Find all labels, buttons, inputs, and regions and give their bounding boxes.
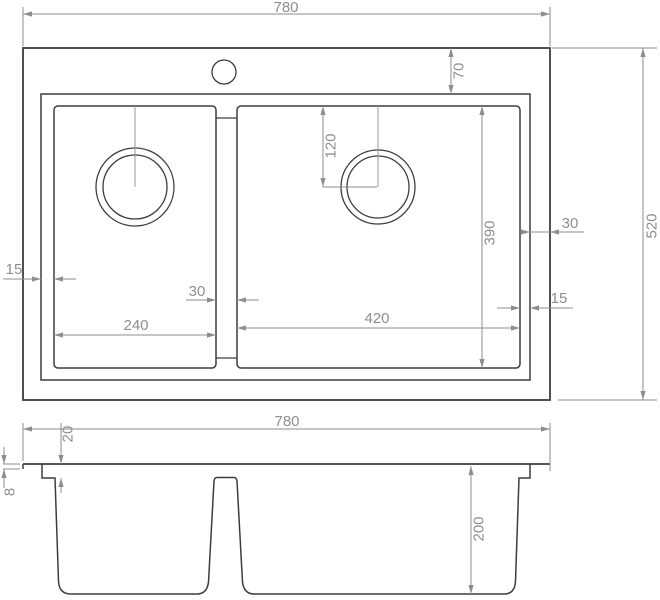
dim-arrow xyxy=(640,391,645,400)
dim-label-overall-width-front: 780 xyxy=(274,413,299,430)
dim-label-divider-width: 30 xyxy=(189,283,206,300)
dimension-rim-offset-top: 70 xyxy=(448,48,467,94)
dim-arrow xyxy=(511,305,520,310)
dim-arrow xyxy=(521,229,530,234)
dim-label-bowl-depth: 200 xyxy=(471,516,488,541)
dim-arrow xyxy=(54,276,63,281)
dim-arrow xyxy=(448,85,453,94)
plan-rim-edge xyxy=(41,94,530,380)
dim-arrow xyxy=(479,106,484,115)
dim-label-bowl-length: 390 xyxy=(482,220,499,245)
dimension-rim-to-bowl-left: 15 xyxy=(3,261,76,282)
dimension-overall-width-front: 780 xyxy=(23,413,550,471)
dim-arrow xyxy=(479,359,484,368)
dim-arrow xyxy=(1,469,6,478)
plan-view xyxy=(23,48,550,400)
dim-arrow xyxy=(237,325,246,330)
dim-arrow xyxy=(54,332,63,337)
dim-arrow xyxy=(468,466,473,475)
dim-arrow xyxy=(511,325,520,330)
dim-arrow xyxy=(58,478,63,487)
dim-label-right-bowl-width: 420 xyxy=(364,310,389,327)
dim-arrow xyxy=(1,455,6,464)
dim-arrow xyxy=(468,585,473,594)
dim-label-rim-to-edge-right: 30 xyxy=(562,215,579,232)
dim-arrow xyxy=(530,305,539,310)
dim-label-drain-offset-from-bowl-top: 120 xyxy=(323,133,340,158)
dim-label-left-bowl-width: 240 xyxy=(123,317,148,334)
dim-arrow xyxy=(32,276,41,281)
dim-label-rim-to-bowl-left: 15 xyxy=(6,261,23,278)
dim-arrow xyxy=(207,332,216,337)
dim-arrow xyxy=(448,48,453,57)
dim-label-overall-depth: 520 xyxy=(644,213,660,238)
dimension-bowl-length: 390 xyxy=(479,106,498,368)
dimension-bowl-to-rim-right: 15 xyxy=(497,290,573,311)
dim-label-rim-height: 20 xyxy=(60,426,77,443)
dimension-drain-offset-from-bowl-top: 120 xyxy=(320,106,377,187)
sink-dimension-drawing: 7807012039052015302404201530780208200 xyxy=(0,0,660,600)
dim-arrow xyxy=(23,426,32,431)
dim-arrow xyxy=(541,11,550,16)
dimension-left-bowl-width: 240 xyxy=(54,317,216,338)
dim-label-bowl-to-rim-right: 15 xyxy=(551,290,568,307)
dim-label-rim-offset-top: 70 xyxy=(451,63,468,80)
faucet-hole xyxy=(212,60,236,84)
dim-label-edge-lip-height: 8 xyxy=(2,488,19,496)
dimension-divider-width: 30 xyxy=(186,283,259,303)
dimension-bowl-depth: 200 xyxy=(468,466,487,594)
dimension-right-bowl-width: 420 xyxy=(237,310,520,331)
dim-arrow xyxy=(320,106,325,115)
dim-arrow xyxy=(550,229,559,234)
plan-outer-edge xyxy=(23,48,550,400)
dimension-overall-width-top: 780 xyxy=(23,0,550,46)
dim-arrow xyxy=(541,426,550,431)
front-bowl-profile xyxy=(42,464,530,594)
dimension-rim-height: 20 xyxy=(58,423,76,493)
dim-arrow xyxy=(237,297,246,302)
dim-arrow xyxy=(23,11,32,16)
dim-arrow xyxy=(58,455,63,464)
drawing-svg: 7807012039052015302404201530780208200 xyxy=(0,0,660,600)
dim-arrow xyxy=(320,178,325,187)
dim-arrow xyxy=(207,297,216,302)
dimension-edge-lip-height: 8 xyxy=(1,447,20,496)
dim-arrow xyxy=(640,48,645,57)
dim-label-overall-width-top: 780 xyxy=(273,0,298,16)
